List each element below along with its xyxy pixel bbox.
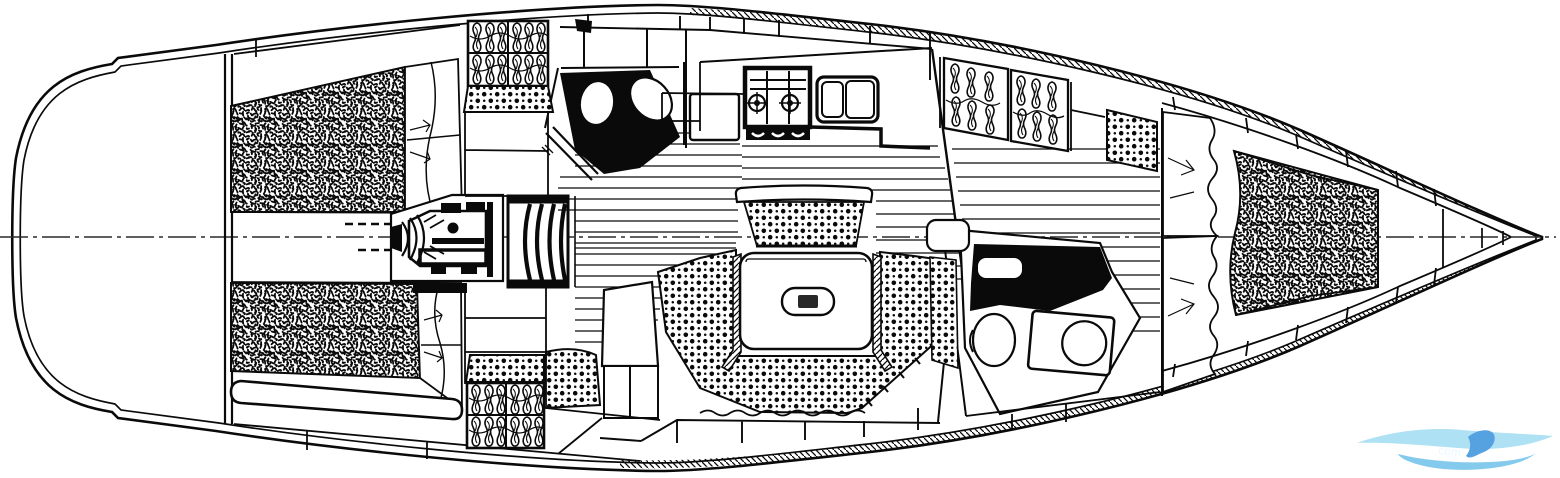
svg-text:com: com	[1438, 443, 1462, 459]
